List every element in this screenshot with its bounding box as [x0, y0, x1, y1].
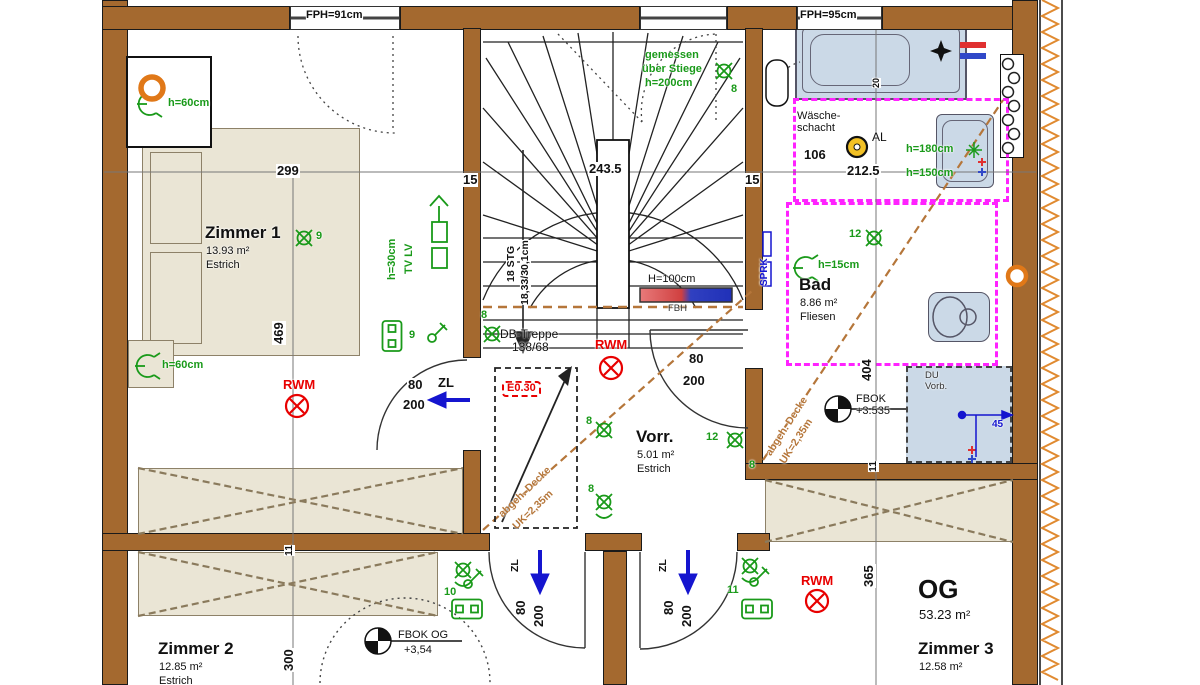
dim-15-right-label: 15 [744, 173, 760, 187]
room-bad-name-label: Bad [799, 276, 831, 294]
lamp-icon [742, 558, 758, 574]
fbok-bad-label-label: FBOK [856, 394, 886, 406]
room-zimmer3-area-label: 12.58 m² [919, 662, 962, 674]
window-fph-left-label: FPH=91cm [306, 10, 363, 22]
dim-300-label: 300 [282, 648, 296, 672]
lamp-icon [596, 422, 612, 438]
rwm-vorraum-label: RWM [595, 338, 627, 352]
rwm-icon [806, 590, 828, 612]
dim-404-label: 404 [860, 358, 874, 382]
floor-og-area-label: 53.23 m² [919, 608, 970, 622]
basin-h150-label: h=150cm [906, 168, 953, 180]
dim-11-left-label: 11 [284, 545, 295, 556]
rwm-icon [600, 357, 622, 379]
socket-icon [452, 600, 482, 619]
radiator-fbh [640, 288, 732, 302]
insulation-strip [1040, 0, 1062, 685]
door-b1-zl-label: ZL [510, 559, 521, 572]
tv-lv-label-label: TV LV [404, 244, 416, 274]
stair-step-size-label: 18,33/30,1cm [520, 240, 531, 305]
rwm-zimmer3-label: RWM [801, 574, 833, 588]
lamp-8-vorr-mid-label: 8 [586, 416, 592, 428]
socket-icon [742, 600, 772, 619]
room-zimmer1-name-label: Zimmer 1 [205, 224, 281, 242]
attic-stair-label-label: DB-Treppe [500, 328, 558, 341]
faucet-icons [930, 40, 986, 463]
room-zimmer1-area-label: 13.93 m² [206, 246, 249, 258]
fbok-og-label-label: FBOK OG [398, 630, 448, 642]
switch-9-label-label: 9 [409, 330, 415, 342]
dimension-lines [104, 30, 1036, 685]
door-z1-zl-label: ZL [437, 376, 455, 390]
fbok-og-value-label: +3,54 [404, 645, 432, 657]
dim-299-label: 299 [276, 164, 300, 178]
rwm-zimmer1-label: RWM [283, 378, 315, 392]
door-b2-width-label: 80 [662, 600, 676, 616]
door-z1-height-label: 200 [402, 398, 426, 412]
shower-prep-1-label: DU [925, 371, 939, 381]
ceiling-diagonals [483, 100, 1003, 530]
wall-lamp-icon [135, 353, 160, 379]
switch-10-label-label: 10 [444, 587, 456, 599]
window-swing-dotted [298, 34, 800, 133]
wall-lamp-h60-top-label: h=60cm [168, 98, 209, 110]
lamp-8-vorr-low-label: 8 [588, 484, 594, 496]
lamp-8-stair-label: 8 [731, 84, 737, 96]
escape-hatch-label-label: E0.30 [502, 381, 541, 397]
dim-11-right-label: 11 [868, 461, 879, 472]
stair-note-over-label: über Stiege [642, 64, 702, 76]
door-bad-height-label: 200 [682, 374, 706, 388]
dim-212-5-label: 212.5 [846, 164, 881, 178]
room-vorraum-floor-label: Estrich [637, 464, 671, 476]
floor-plan-canvas: Zimmer 113.93 m²EstrichVorr.5.01 m²Estri… [0, 0, 1200, 685]
lamp-icon [596, 494, 612, 510]
lamp-icon [716, 63, 732, 79]
door-b2-height-label: 200 [680, 604, 694, 628]
dim-469-label: 469 [272, 321, 286, 345]
tv-height-label: h=30cm [387, 239, 399, 280]
shower-prep-dims [959, 411, 1013, 457]
wall-lamp-h60-bottom-label: h=60cm [162, 360, 203, 372]
vent-shaft-circles [1003, 59, 1020, 154]
basin-star-icon [966, 142, 982, 158]
faucet-star-icon [930, 40, 952, 62]
switch-11-label-label: 11 [727, 585, 739, 597]
sprinkler-label-label: SPRK [760, 258, 771, 286]
room-zimmer2-area-label: 12.85 m² [159, 662, 202, 674]
al-outlet-icon [847, 137, 867, 157]
lamp-icon [727, 432, 743, 448]
room-bad-floor-label: Fliesen [800, 312, 835, 324]
room-zimmer2-floor-label: Estrich [159, 676, 193, 685]
stair-note-height-label: h=200cm [645, 78, 692, 90]
room-zimmer3-name-label: Zimmer 3 [918, 640, 994, 658]
dim-365-label: 365 [862, 564, 876, 588]
al-label-label: AL [872, 131, 887, 144]
du-dim-45-label: 45 [992, 420, 1003, 431]
radiator-type-label: FBH [668, 304, 687, 314]
lamp-icon [484, 326, 500, 342]
tv-bracket-icon [430, 196, 448, 268]
room-bad-area-label: 8.86 m² [800, 298, 837, 310]
socket-icon [383, 321, 402, 351]
radiator-height-label: H=100cm [648, 274, 695, 286]
lamp-icon [455, 562, 471, 578]
lamp-icon [296, 230, 312, 246]
bad-door-leaf [766, 60, 788, 106]
basin-h180-label: h=180cm [906, 144, 953, 156]
room-vorraum-area-label: 5.01 m² [637, 450, 674, 462]
door-b1-width-label: 80 [514, 600, 528, 616]
laundry-chute-1-label: Wäsche- [797, 111, 840, 123]
door-b2-zl-label: ZL [658, 559, 669, 572]
window-fph-right-label: FPH=95cm [800, 10, 857, 22]
toilet-bowl [933, 297, 976, 337]
dim-243-5-label: 243.5 [588, 162, 623, 176]
rwm-icon [286, 395, 308, 417]
lamp-9-zimmer1-label: 9 [316, 231, 322, 243]
lamp-8-vorr-left-label: 8 [481, 310, 487, 322]
wall-lamp-h15-label: h=15cm [818, 260, 859, 272]
door-bad-width-label: 80 [688, 352, 704, 366]
laundry-chute-2-label: schacht [797, 123, 835, 135]
stair-note-measured-label: gemessen [645, 50, 699, 62]
fbok-bad-value-label: +3.535 [856, 406, 890, 418]
dim-15-left-label: 15 [462, 173, 478, 187]
lamp-8-vorr-right-label: 8 [749, 460, 755, 472]
room-vorraum-name-label: Vorr. [636, 428, 673, 446]
switch-icon [428, 323, 447, 342]
room-zimmer1-floor-label: Estrich [206, 260, 240, 272]
floor-og-name-label: OG [918, 576, 958, 603]
door-b1-height-label: 200 [532, 604, 546, 628]
dim-20-bathtub-label: 20 [872, 78, 881, 88]
smoke-detectors [286, 357, 828, 612]
lamp-12-vorr-label: 12 [706, 432, 718, 444]
wardrobe-cross-lines [138, 468, 1013, 616]
stair-step-count-label: 18 STG [506, 246, 517, 282]
lamp-icon [866, 230, 882, 246]
room-zimmer2-name-label: Zimmer 2 [158, 640, 234, 658]
attic-stair-size-label: 138/68 [512, 341, 549, 354]
downpipe-ring-icon [1008, 267, 1026, 285]
door-z1-width-label: 80 [407, 378, 423, 392]
lamp-12-bad-label: 12 [849, 229, 861, 241]
shower-prep-2-label: Vorb. [925, 382, 947, 392]
downpipe-ring-icon [141, 77, 163, 99]
dim-106-label: 106 [803, 148, 827, 162]
